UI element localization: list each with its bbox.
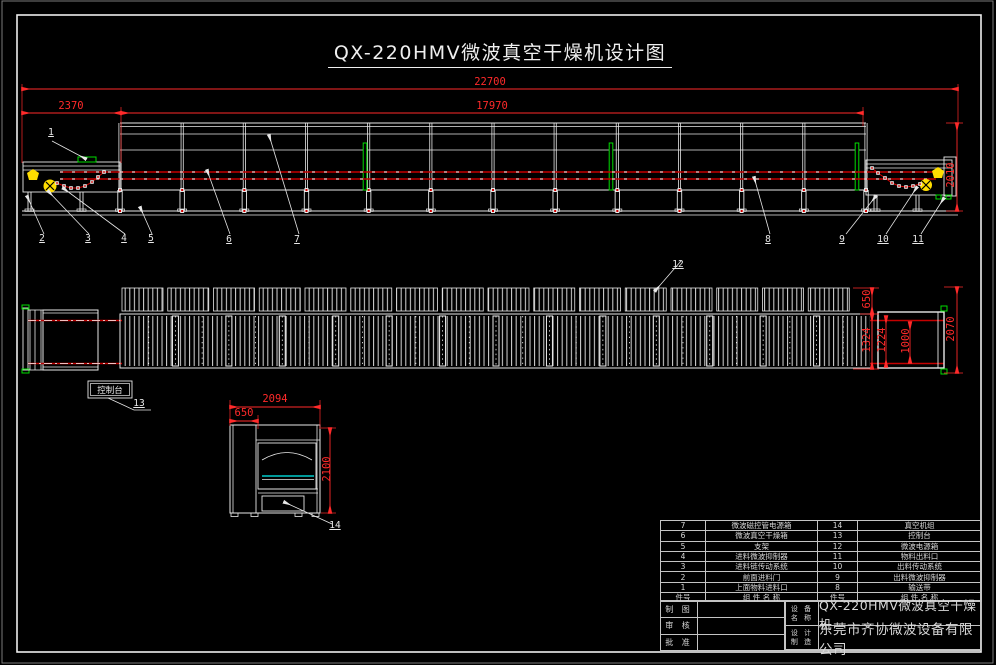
part-name-cell: 进料微波抑制器: [706, 552, 818, 562]
part-no-cell: 11: [818, 552, 858, 562]
dim-plan-belt: 1000: [900, 311, 912, 371]
dim-plan-total: 2070: [945, 299, 957, 359]
balloon-2: 2: [33, 233, 51, 244]
part-name-cell: 出料传动系统: [858, 562, 982, 572]
balloon-8: 8: [759, 234, 777, 245]
dim-plan-outer: 1324: [861, 310, 873, 370]
dim-front-width: 2094: [245, 393, 305, 405]
part-name-cell: 微波真空干燥箱: [706, 531, 818, 541]
balloon-9: 9: [833, 234, 851, 245]
balloon-13: 13: [130, 398, 148, 409]
valve-symbol: [932, 167, 944, 178]
part-name-cell: 进料链传动系统: [706, 562, 818, 572]
balloon-1: 1: [42, 127, 60, 138]
company-name: 东莞市齐协微波设备有限公司: [819, 626, 981, 650]
part-no-cell: 12: [818, 542, 858, 552]
part-name-cell: 出料微波抑制器: [858, 572, 982, 582]
part-no-cell: 10: [818, 562, 858, 572]
part-name-cell: 真空机组: [858, 521, 982, 531]
front-view: [230, 425, 320, 517]
balloon-7: 7: [288, 234, 306, 245]
balloon-11: 11: [909, 234, 927, 245]
side-view: [22, 123, 958, 215]
balloon-12: 12: [669, 259, 687, 270]
balloon-14: 14: [326, 520, 344, 531]
part-name-cell: 物料出料口: [858, 552, 982, 562]
title-block-signatures: 制 图 审 核 批 准: [660, 601, 785, 651]
dim-body-length: 17970: [462, 100, 522, 112]
part-no-cell: 14: [818, 521, 858, 531]
design-label: 设 计 制 造: [786, 626, 819, 650]
balloon-3: 3: [79, 233, 97, 244]
front-window: [258, 443, 316, 489]
page-title: QX-220HMV微波真空干燥机设计图: [328, 38, 672, 68]
part-no-cell: 9: [818, 572, 858, 582]
part-no-cell: 5: [661, 542, 706, 552]
balloon-10: 10: [874, 234, 892, 245]
part-name-cell: 上面物料进料口: [706, 583, 818, 593]
part-name-cell: 微波电源箱: [858, 542, 982, 552]
dim-feed-length: 2370: [41, 100, 101, 112]
device-name-label: 设 备 名 称: [786, 602, 819, 626]
dim-front-box: 650: [224, 407, 264, 419]
parts-table: 7 微波磁控管电源箱 14 真空机组 6 微波真空干燥箱 13 控制台 5 支架…: [660, 520, 981, 601]
balloon-6: 6: [220, 234, 238, 245]
part-no-cell: 13: [818, 531, 858, 541]
balloon-5: 5: [142, 233, 160, 244]
part-no-cell: 3: [661, 562, 706, 572]
part-no-cell: 6: [661, 531, 706, 541]
console-label: 控制台: [90, 384, 130, 396]
part-no-cell: 7: [661, 521, 706, 531]
part-name-cell: 微波磁控管电源箱: [706, 521, 818, 531]
cad-drawing: QX-220HMV微波真空干燥机设计图 22700 2370 17970 201…: [0, 0, 996, 665]
draw-value: [698, 602, 785, 618]
dim-overall-length: 22700: [460, 76, 520, 88]
belt-top-strip: [122, 288, 849, 311]
check-label: 审 核: [661, 618, 698, 634]
check-value: [698, 618, 785, 634]
plan-view: [22, 288, 947, 410]
balloon-4: 4: [115, 233, 133, 244]
infeed-unit: [23, 157, 120, 211]
part-no-cell: 2: [661, 572, 706, 582]
dim-side-height: 2010: [945, 145, 957, 205]
dim-front-height: 2100: [321, 439, 333, 499]
approve-label: 批 准: [661, 635, 698, 651]
part-name-cell: 控制台: [858, 531, 982, 541]
part-no-cell: 8: [818, 583, 858, 593]
draw-label: 制 图: [661, 602, 698, 618]
dim-plan-chamber: 1224: [876, 310, 888, 370]
part-no-cell: 4: [661, 552, 706, 562]
valve-symbol: [27, 169, 39, 180]
part-no-cell: 1: [661, 583, 706, 593]
discharge-unit: [866, 157, 956, 211]
part-name-cell: 支架: [706, 542, 818, 552]
title-block-main: 设 备 名 称 QX-220HMV微波真空干燥机 设 计 制 造 东莞市齐协微波…: [785, 601, 981, 651]
part-name-cell: 前面进料门: [706, 572, 818, 582]
part-name-cell: 输送带: [858, 583, 982, 593]
approve-value: [698, 635, 785, 651]
front-lower-panel: [262, 496, 304, 511]
